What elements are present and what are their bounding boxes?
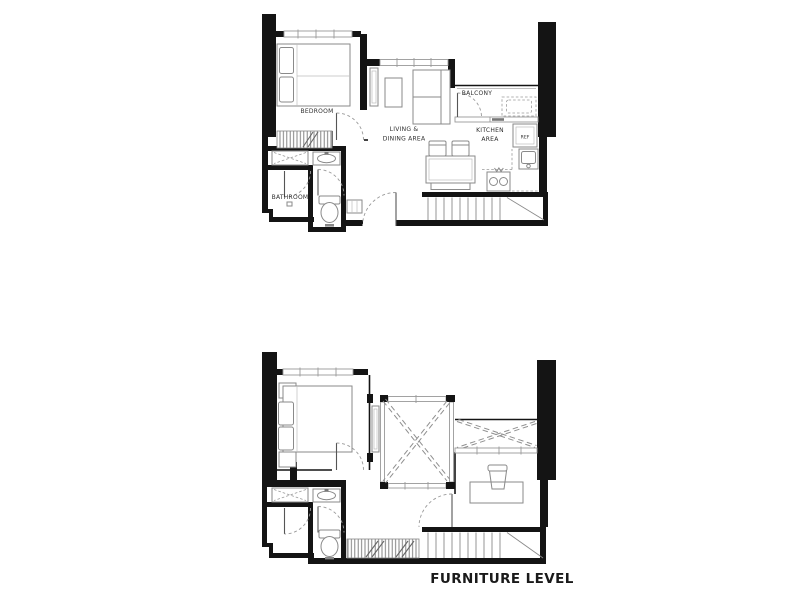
entry-door bbox=[363, 193, 397, 227]
bedroom-door bbox=[337, 113, 364, 140]
shower-icon bbox=[272, 488, 308, 502]
console-icon bbox=[372, 406, 379, 452]
refrigerator-icon: REF bbox=[513, 124, 537, 147]
washbasin-icon bbox=[313, 489, 340, 502]
wall-left-pillar bbox=[262, 352, 277, 482]
dining-set-icon bbox=[426, 141, 475, 190]
coffee-table-icon bbox=[385, 78, 402, 107]
floor-plan-upper-level: BEDROOM bbox=[262, 14, 556, 232]
bathroom-label: BATHROOM bbox=[272, 194, 309, 201]
floor-drain-icon bbox=[287, 202, 292, 206]
stairs-upper bbox=[428, 198, 544, 221]
desk-chair-icon bbox=[470, 465, 523, 503]
living-dining-label-line1: LIVING & bbox=[390, 126, 419, 133]
condenser-unit-icon bbox=[502, 97, 536, 116]
sofa-icon bbox=[413, 70, 450, 124]
bed-icon bbox=[277, 44, 350, 106]
wc-door bbox=[318, 507, 344, 533]
bedroom-window bbox=[284, 30, 352, 39]
balcony-sliding-door bbox=[455, 117, 538, 122]
ref-label: REF bbox=[521, 135, 530, 141]
wall-left-pillar bbox=[262, 14, 276, 137]
toilet-icon bbox=[319, 530, 340, 559]
study-room-door bbox=[419, 494, 452, 527]
wc-door bbox=[318, 170, 344, 196]
wardrobe-icon bbox=[347, 539, 419, 558]
bed-icon bbox=[279, 383, 353, 467]
bedroom-label: BEDROOM bbox=[300, 108, 333, 115]
bathroom-door bbox=[285, 508, 311, 534]
shower-icon bbox=[272, 151, 308, 165]
kitchen-label-line1: KITCHEN bbox=[476, 127, 504, 134]
floor-plan-furniture-level: FURNITURE LEVEL bbox=[262, 352, 574, 587]
bedroom-window-furniture bbox=[283, 368, 353, 377]
living-window bbox=[380, 58, 448, 67]
kitchen-sink-icon bbox=[519, 149, 538, 169]
walls-furniture-level bbox=[262, 352, 556, 564]
stairs-furniture-level bbox=[428, 533, 543, 559]
living-dining-label-line2: DINING AREA bbox=[383, 136, 426, 143]
kitchen-label-line2: AREA bbox=[481, 136, 499, 143]
wardrobe-icon bbox=[277, 131, 332, 148]
void-opening bbox=[380, 395, 455, 490]
wall-right-pillar bbox=[538, 22, 556, 137]
furniture-level-caption: FURNITURE LEVEL bbox=[430, 571, 574, 587]
toilet-icon bbox=[319, 196, 340, 227]
floor-plan-svg: BEDROOM bbox=[0, 0, 800, 600]
tv-console-icon bbox=[370, 68, 378, 106]
balcony-void-opening bbox=[455, 420, 537, 455]
floor-plan-page: BEDROOM bbox=[0, 0, 800, 600]
entry-cabinet-icon bbox=[347, 200, 362, 213]
stove-icon bbox=[487, 168, 510, 191]
balcony-label: BALCONY bbox=[462, 90, 492, 97]
washbasin-icon bbox=[313, 152, 340, 165]
wall-right-pillar bbox=[537, 360, 556, 480]
